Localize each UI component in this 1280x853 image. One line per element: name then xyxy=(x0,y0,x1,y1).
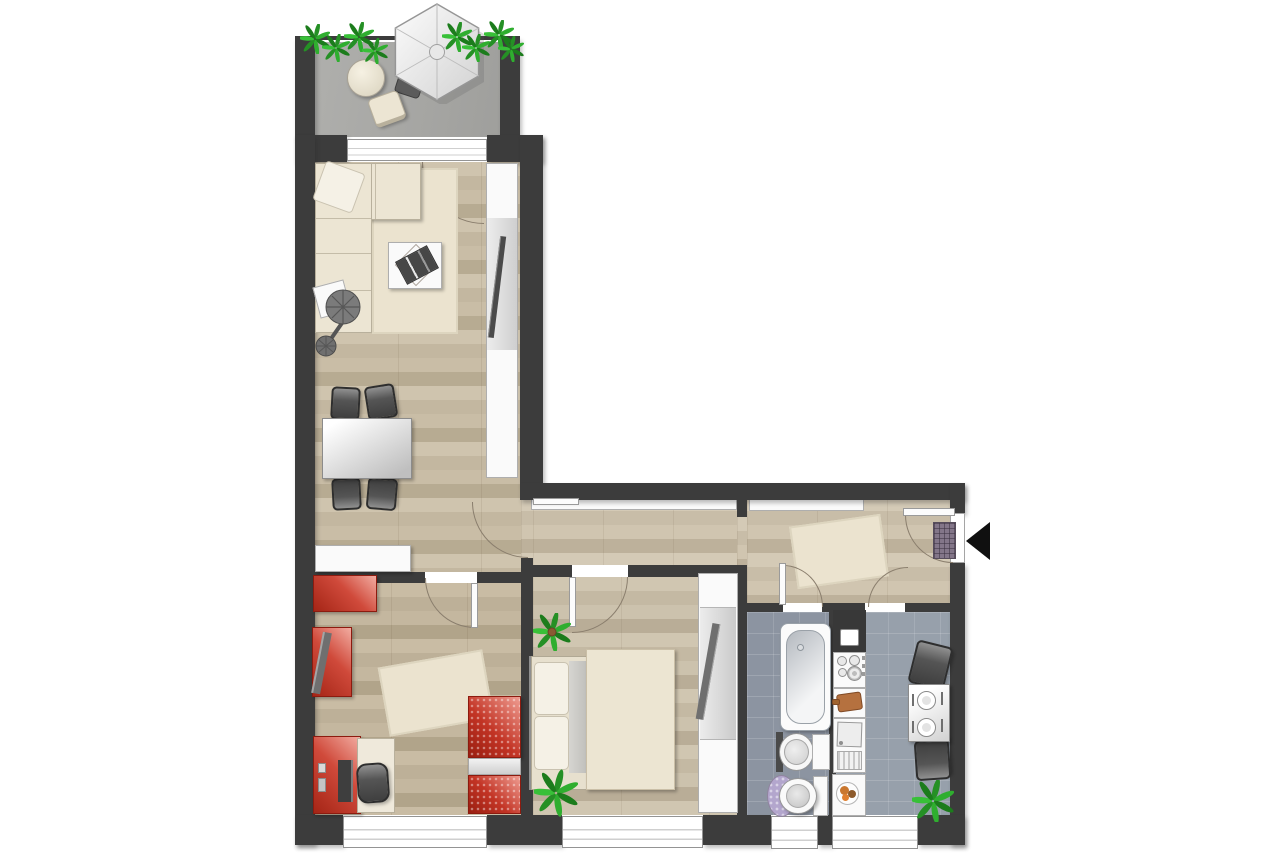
stove-burner-pot xyxy=(847,666,862,681)
kitchen-chair xyxy=(914,739,952,781)
potted-plant-icon xyxy=(533,613,571,651)
bedroom-window xyxy=(562,816,703,848)
living-hall-door-leaf xyxy=(533,498,579,505)
sofa-seam xyxy=(316,218,371,219)
fork xyxy=(912,694,914,706)
wall-bedroom-bath-divider xyxy=(737,565,747,815)
desk-item xyxy=(318,778,326,792)
bathroom-window xyxy=(771,816,818,849)
bed-pillow xyxy=(534,662,569,715)
childrens-door-leaf xyxy=(471,583,478,628)
fruit xyxy=(848,790,856,798)
red-dresser xyxy=(313,575,377,612)
red-bed-foot xyxy=(468,775,521,814)
balcony-window-door xyxy=(347,139,487,161)
wall-bottom-1 xyxy=(295,815,343,845)
red-bed-pillow xyxy=(468,758,521,775)
bathtub-drain xyxy=(797,644,804,651)
wall-hall-north xyxy=(520,483,965,500)
sink-faucet xyxy=(839,741,843,745)
wall-kitchen-top xyxy=(905,603,950,612)
wall-childrens-top-right xyxy=(477,572,521,583)
living-sideboard xyxy=(315,545,411,572)
balcony-round-table xyxy=(347,59,385,97)
red-bed-duvet xyxy=(468,696,521,758)
wall-bedroom-top-left xyxy=(533,565,572,577)
wall-exterior-wing-right xyxy=(520,135,543,485)
bed-pillow xyxy=(534,716,569,770)
monitor xyxy=(338,760,353,802)
wall-exterior-left xyxy=(295,135,315,845)
dining-chair xyxy=(364,383,399,421)
stove-knobs xyxy=(862,656,865,680)
stove-burner xyxy=(837,656,847,666)
knife xyxy=(941,692,943,705)
fork xyxy=(912,721,914,733)
bath-cabinet xyxy=(812,734,830,770)
plate-center xyxy=(922,723,931,732)
cutting-board-handle xyxy=(832,699,840,705)
dining-chair xyxy=(331,477,362,510)
knife xyxy=(941,719,943,732)
toilet-bowl xyxy=(786,784,810,808)
wall-bottom-2 xyxy=(487,815,562,845)
plant-icon xyxy=(498,36,524,62)
wall-bottom-3 xyxy=(703,815,771,845)
floor-lamp-icon xyxy=(312,283,366,359)
office-chair xyxy=(356,762,391,804)
dining-table xyxy=(322,418,412,479)
bathroom-door-leaf xyxy=(779,563,786,605)
sofa-seam xyxy=(375,164,376,219)
red-desk xyxy=(313,736,361,814)
wall-bottom-4 xyxy=(818,815,832,845)
stove-burner xyxy=(838,668,847,677)
kitchen-tall-unit-front xyxy=(840,629,859,646)
bathtub-basin xyxy=(786,630,825,724)
childrens-window xyxy=(343,816,487,848)
plant-icon xyxy=(534,769,578,817)
plant-icon xyxy=(362,38,388,64)
kitchen-window xyxy=(832,816,918,849)
plate-center xyxy=(922,696,931,705)
washbasin-bowl xyxy=(784,739,809,765)
fruit xyxy=(842,794,849,801)
wall-hall-stub xyxy=(737,500,747,517)
entrance-door-leaf xyxy=(903,508,955,516)
sink-drainer xyxy=(837,751,862,770)
sofa-seam xyxy=(316,253,371,254)
entrance-arrow-icon xyxy=(966,522,990,560)
dining-chair xyxy=(330,386,361,420)
hallway-floor-passage xyxy=(737,517,747,565)
doormat xyxy=(933,522,956,559)
desk-item xyxy=(318,763,326,773)
wall-bath-top-left xyxy=(747,603,783,612)
stove-burner xyxy=(849,655,860,666)
dining-chair xyxy=(366,477,399,511)
bed-duvet xyxy=(586,649,675,790)
floor-plan xyxy=(0,0,1280,853)
plant-icon xyxy=(912,780,954,822)
